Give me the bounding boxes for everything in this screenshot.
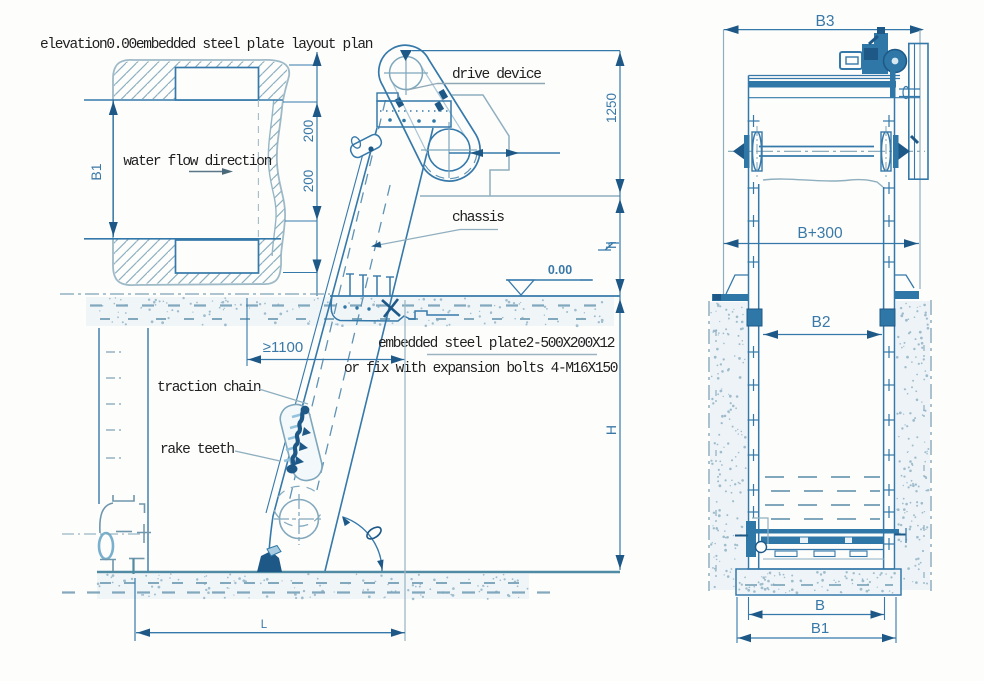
svg-text:B1: B1 [88,163,104,180]
svg-text:B3: B3 [816,13,835,30]
svg-text:1250: 1250 [604,93,619,123]
svg-text:B1: B1 [811,620,829,637]
svg-text:200: 200 [301,170,316,193]
svg-text:elevation0.00embedded steel pl: elevation0.00embedded steel plate layout… [40,37,373,53]
svg-text:B: B [815,597,825,614]
svg-text:200: 200 [301,120,316,143]
svg-text:B+300: B+300 [797,225,843,242]
svg-text:drive device: drive device [452,67,541,83]
svg-text:traction chain: traction chain [157,380,261,396]
svg-text:L: L [261,619,268,631]
svg-text:≥1100: ≥1100 [263,339,304,356]
svg-text:or fix with expansion bolts 4-: or fix with expansion bolts 4-M16X150 [344,361,618,377]
svg-text:0.00: 0.00 [548,263,572,277]
svg-text:rake teeth: rake teeth [160,442,234,458]
svg-text:B2: B2 [812,314,831,331]
svg-text:chassis: chassis [452,210,504,226]
svg-text:water flow direction: water flow direction [123,154,271,170]
svg-text:H: H [603,425,619,435]
svg-text:embedded steel plate2-500X200X: embedded steel plate2-500X200X12 [378,336,615,352]
